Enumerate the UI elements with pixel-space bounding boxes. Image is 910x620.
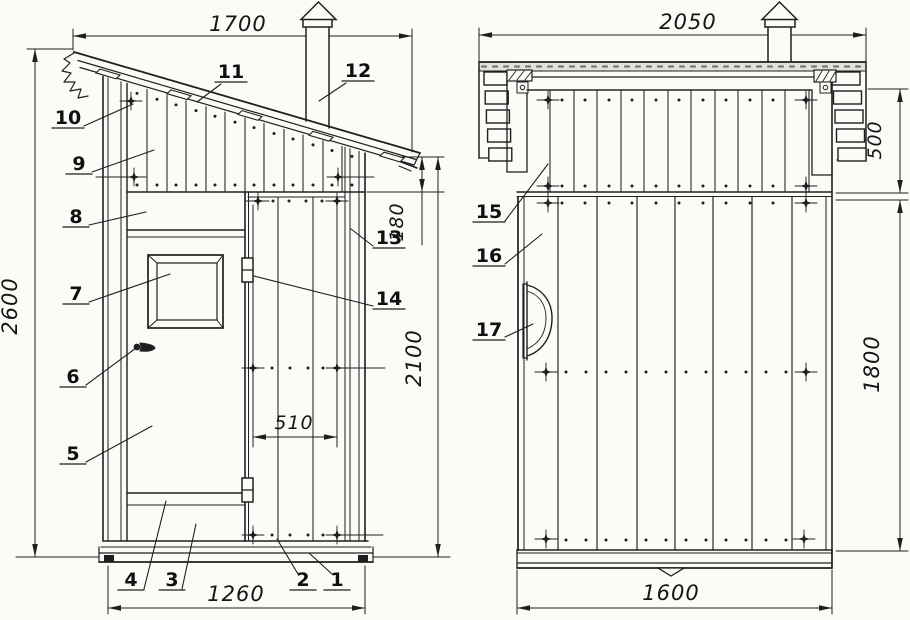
callout-2: 2 — [296, 569, 309, 591]
structure-lines — [62, 2, 866, 576]
callout-8: 8 — [69, 206, 82, 228]
technical-drawing: 1700 2600 180 2100 510 1260 2050 500 180… — [0, 0, 910, 620]
callout-7: 7 — [69, 283, 82, 305]
callout-6: 6 — [66, 366, 79, 388]
dim-label-top-width-front: 1700 — [209, 12, 266, 36]
callout-10: 10 — [55, 107, 81, 129]
callout-13: 13 — [376, 227, 402, 249]
callout-17: 17 — [476, 319, 502, 341]
callout-14: 14 — [376, 288, 402, 310]
callout-15: 15 — [476, 201, 502, 223]
callout-1: 1 — [330, 569, 343, 591]
callout-16: 16 — [476, 245, 502, 267]
dim-label-base-width-side: 1600 — [642, 581, 699, 605]
callout-4: 4 — [124, 569, 137, 591]
callout-11: 11 — [218, 61, 244, 83]
dim-label-wall-height-side: 1800 — [860, 335, 884, 392]
callout-5: 5 — [66, 443, 79, 465]
dim-label-wall-height-front: 2100 — [402, 329, 426, 386]
dim-label-door-width: 510 — [274, 412, 313, 434]
dimension-lines — [16, 28, 908, 614]
callout-3: 3 — [165, 569, 178, 591]
dim-label-base-width-front: 1260 — [207, 582, 264, 606]
dim-label-overall-height: 2600 — [0, 277, 22, 334]
callout-9: 9 — [72, 153, 85, 175]
dim-label-top-width-side: 2050 — [659, 10, 716, 34]
dim-label-gable-band: 500 — [864, 120, 886, 159]
callout-12: 12 — [345, 60, 371, 82]
drawing-sheet: 1700 2600 180 2100 510 1260 2050 500 180… — [0, 0, 910, 620]
